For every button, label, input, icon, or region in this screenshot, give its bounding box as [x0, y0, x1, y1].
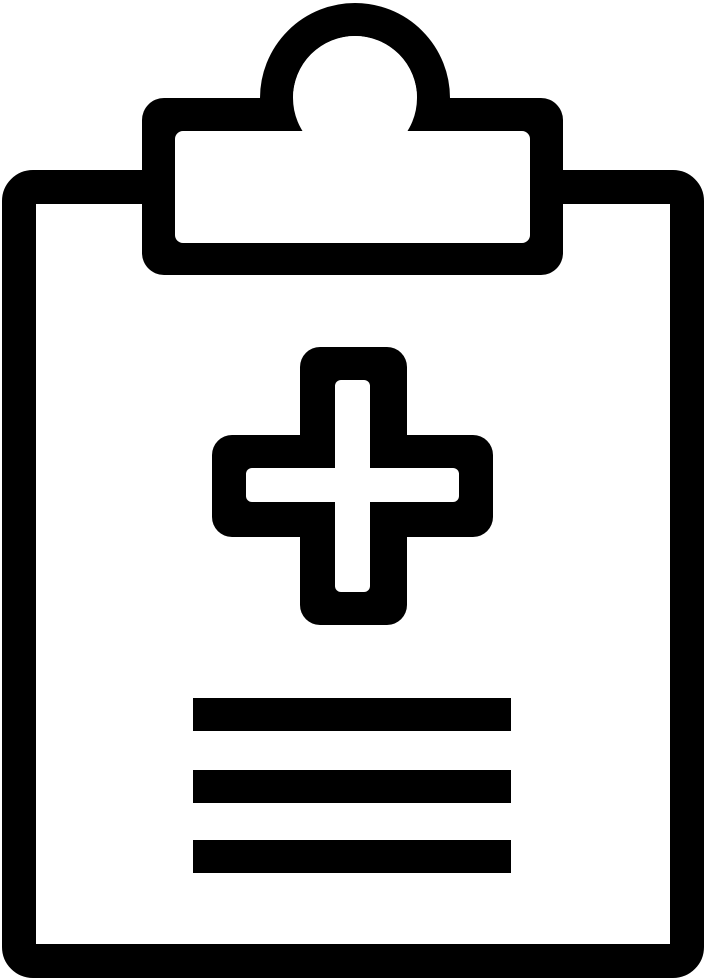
text-line: [193, 698, 511, 731]
icon-canvas: [0, 0, 706, 980]
cross-inner-horizontal: [246, 468, 459, 502]
report-text-lines: [193, 698, 511, 873]
text-line: [193, 840, 511, 873]
medical-cross: [212, 347, 493, 625]
text-line: [193, 770, 511, 803]
clip-handle-hole: [293, 36, 417, 160]
medical-clipboard-icon: [0, 0, 706, 980]
